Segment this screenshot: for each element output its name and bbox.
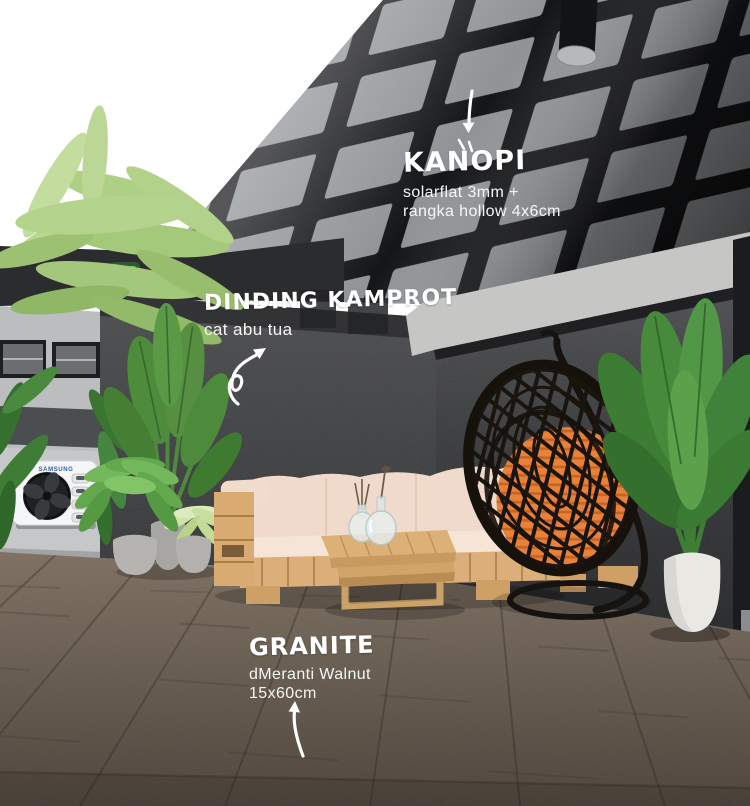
annotation-granite: GRANITE dMeranti Walnut 15x60cm	[249, 632, 375, 703]
downlight-cylinder	[556, 0, 600, 67]
window	[0, 340, 46, 378]
terrace-design-render: SAMSUNG	[0, 0, 750, 806]
dinding-detail-line1: cat abu tua	[204, 320, 457, 340]
kanopi-detail-line2: rangka hollow 4x6cm	[403, 203, 561, 222]
granite-detail-line2: 15x60cm	[249, 685, 375, 704]
sofa-armrest	[214, 492, 254, 586]
window	[52, 342, 100, 378]
granite-title: GRANITE	[249, 631, 375, 662]
granite-detail-line1: dMeranti Walnut	[249, 666, 375, 685]
annotation-kanopi: KANOPI solarflat 3mm + rangka hollow 4x6…	[403, 146, 561, 221]
scene-art: SAMSUNG	[0, 0, 750, 806]
ac-brand-text: SAMSUNG	[39, 467, 74, 473]
annotation-dinding-kamprot: DINDING KAMPROT cat abu tua	[204, 288, 457, 340]
dinding-title: DINDING KAMPROT	[204, 285, 458, 316]
kanopi-title: KANOPI	[403, 144, 562, 179]
kanopi-detail-line1: solarflat 3mm +	[403, 184, 561, 203]
